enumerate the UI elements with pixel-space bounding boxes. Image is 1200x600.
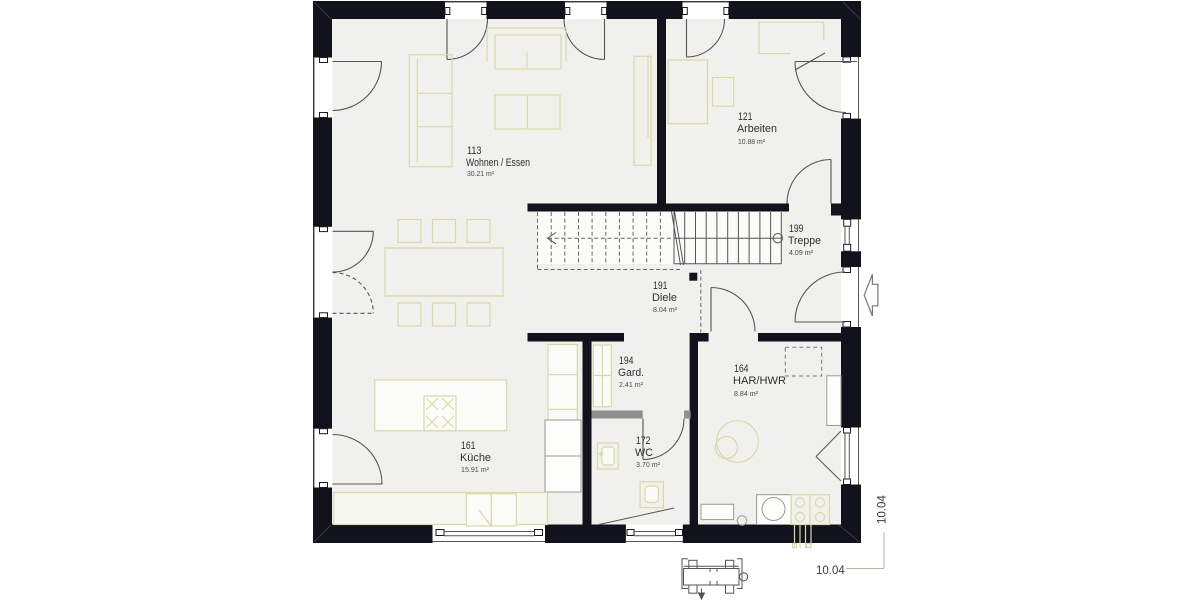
svg-text:199: 199 [789,223,804,235]
svg-text:191: 191 [653,280,668,292]
svg-text:161: 161 [461,440,476,452]
svg-text:121: 121 [738,111,753,123]
svg-text:Arbeiten: Arbeiten [737,123,777,135]
svg-text:4.09 m²: 4.09 m² [789,248,813,257]
svg-text:Treppe: Treppe [788,235,821,247]
svg-text:8.84 m²: 8.84 m² [734,389,758,398]
svg-text:8.04 m²: 8.04 m² [653,305,677,314]
svg-text:Diele: Diele [652,292,677,304]
svg-text:30.21 m²: 30.21 m² [467,169,494,178]
svg-text:194: 194 [619,355,634,367]
svg-text:3.70 m²: 3.70 m² [636,460,660,469]
svg-text:10.88 m²: 10.88 m² [738,137,765,146]
svg-text:2.41 m²: 2.41 m² [619,380,643,389]
svg-text:10.04: 10.04 [877,495,889,524]
svg-text:10.04: 10.04 [816,565,845,577]
svg-text:113: 113 [467,145,482,157]
svg-text:HAR/HWR: HAR/HWR [733,375,786,387]
svg-text:Gard.: Gard. [618,367,644,379]
svg-text:172: 172 [636,435,651,447]
svg-text:Wohnen / Essen: Wohnen / Essen [466,157,530,169]
svg-text:Küche: Küche [460,452,491,464]
svg-text:15.91 m²: 15.91 m² [461,465,489,474]
svg-text:164: 164 [734,363,749,375]
svg-text:WC: WC [635,447,653,459]
